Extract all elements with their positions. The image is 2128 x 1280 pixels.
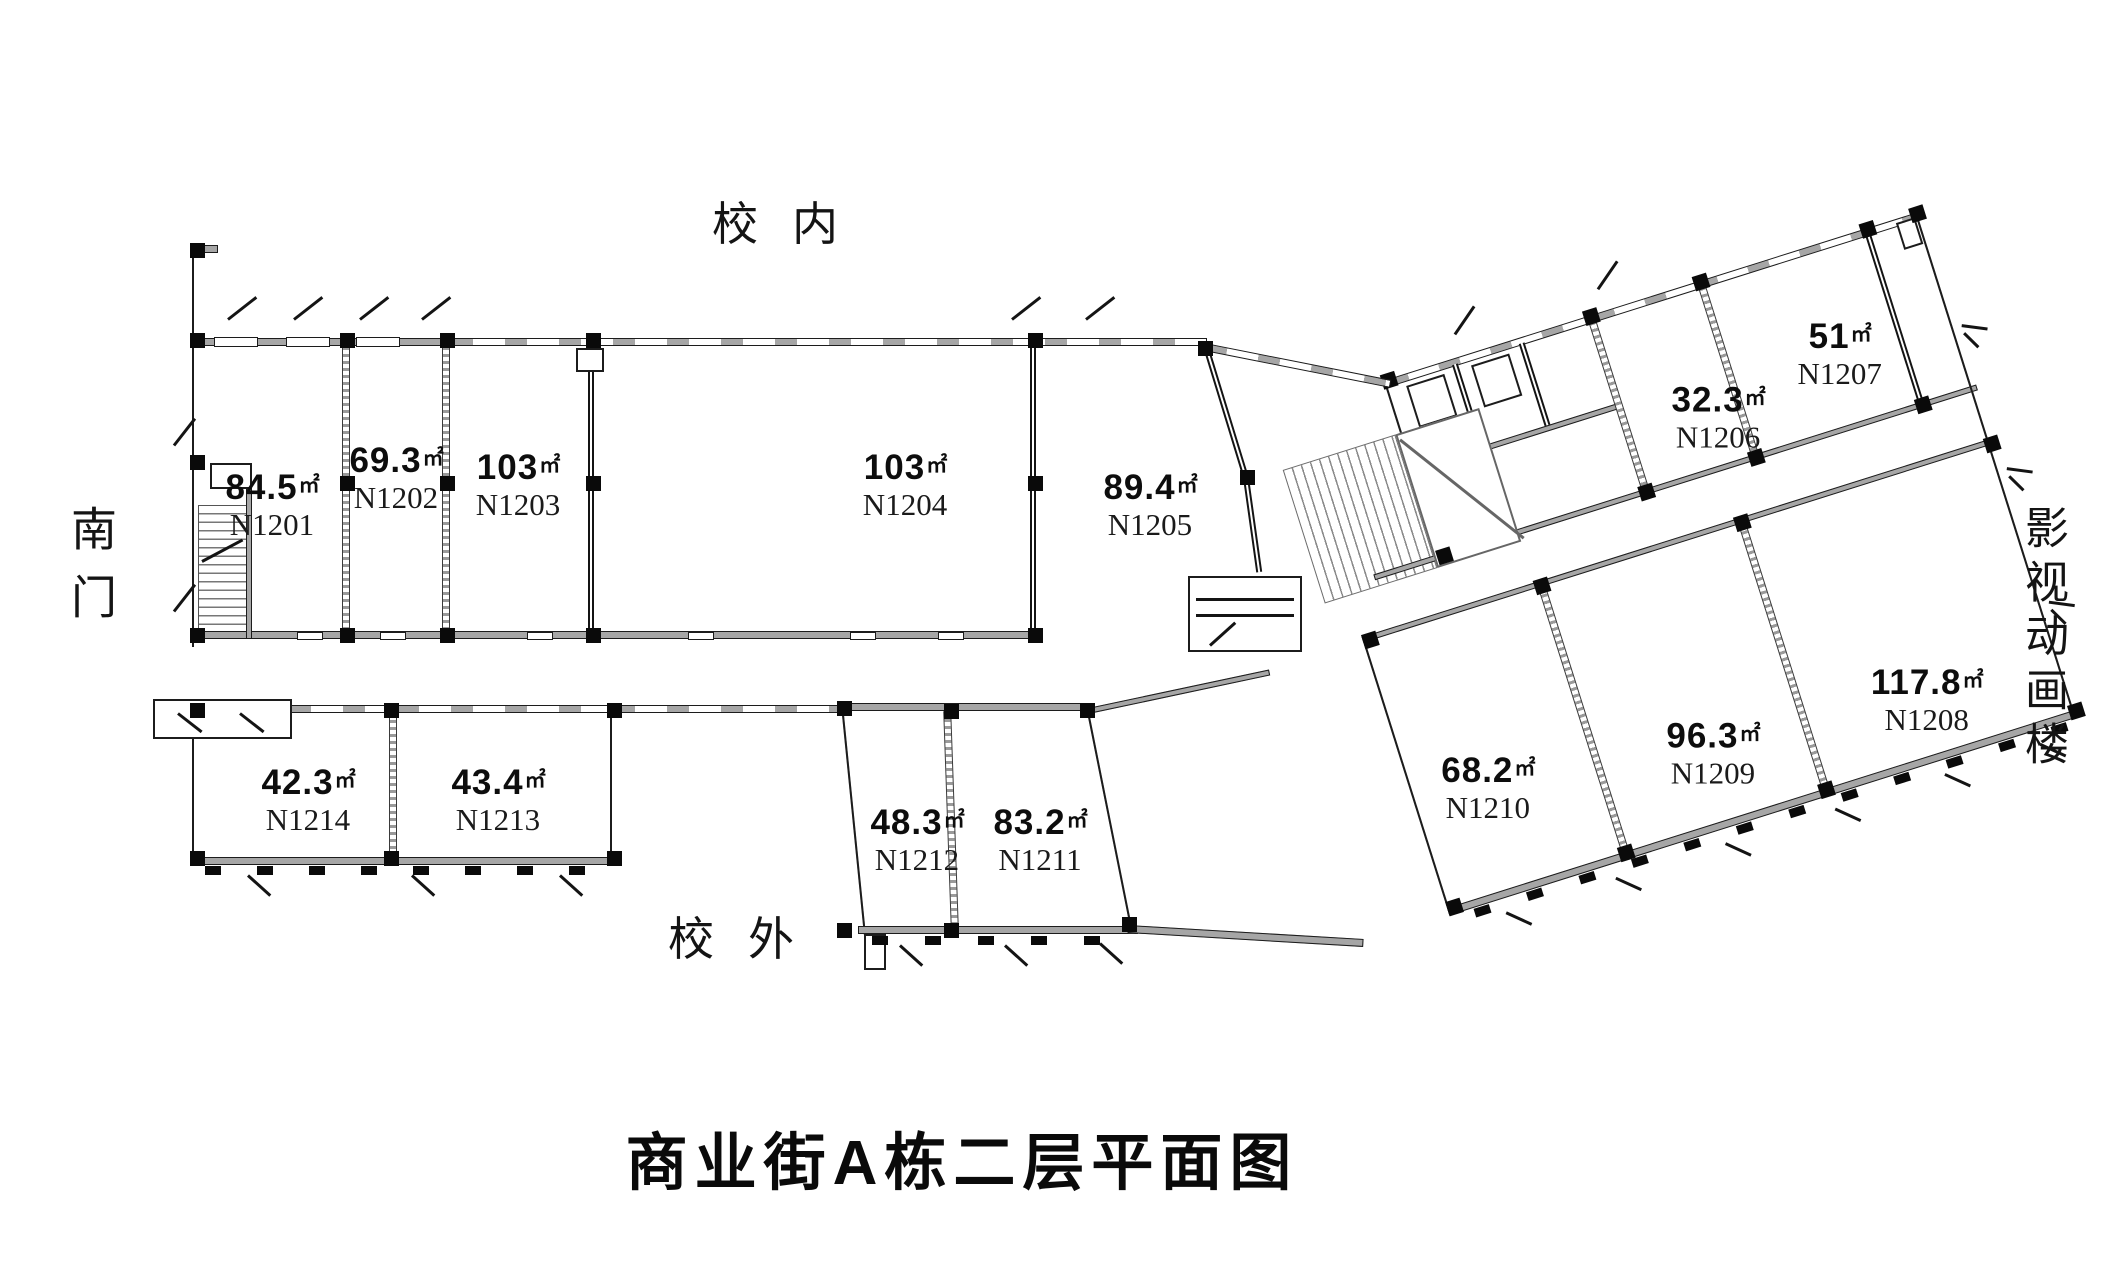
room-area: 96.3 [1666,717,1738,756]
wall-north-windows [450,338,1207,346]
room-label-n1208: 117.8㎡ N1208 [1871,664,1983,736]
room-code: N1209 [1666,756,1759,789]
column-marker [384,851,399,866]
room-label-n1207: 51㎡ N1207 [1797,318,1881,390]
door-swing-icon [899,944,923,966]
door-swing-icon [559,874,583,896]
column-marker [607,851,622,866]
divider-n1210-n1209 [1538,585,1629,853]
room-area-unit: ㎡ [1745,386,1766,409]
block-se-north-wall [840,703,1092,711]
room-area-unit: ㎡ [1851,323,1872,346]
arcade-column-tick [872,936,888,945]
column-marker [1028,333,1043,348]
window-mark-icon [1963,332,1979,348]
room-area-unit: ㎡ [539,454,560,477]
wing-south-wall [1447,709,2081,916]
room-area: 103 [477,448,538,487]
column-marker [586,333,601,348]
diagonal-wing: 32.3㎡ N1206 51㎡ N1207 68.2㎡ N1210 96.3㎡ … [1290,200,2126,945]
room-area: 83.2 [993,803,1065,842]
room-label-n1210: 68.2㎡ N1210 [1441,752,1534,824]
column-marker [1445,898,1464,917]
room-code: N1206 [1672,420,1765,453]
door-gap [938,632,964,640]
room-code: N1214 [261,803,354,836]
porch-step-line [1196,598,1294,601]
divider-n1214-n1213 [389,712,397,859]
column-marker [190,243,205,258]
column-marker [340,333,355,348]
room-area: 117.8 [1871,663,1962,702]
column-marker [1240,470,1255,485]
door-swing-icon [1506,911,1533,925]
room-label-n1201: 84.5㎡ N1201 [225,469,318,541]
column-marker [944,704,959,719]
room-area-unit: ㎡ [1067,809,1088,832]
room-area-unit: ㎡ [423,447,444,470]
room-code: N1211 [993,843,1086,876]
room-area: 32.3 [1672,380,1744,419]
room-area: 69.3 [349,441,421,480]
room-area-unit: ㎡ [1514,757,1535,780]
door-swing-icon [1004,944,1028,966]
column-marker [1859,220,1878,239]
door-swing-icon [1615,877,1642,891]
room-code: N1213 [451,803,544,836]
room-area: 84.5 [225,468,297,507]
door-jamb-n1204 [576,348,604,372]
room-code: N1208 [1871,703,1983,736]
room-code: N1204 [863,488,947,521]
column-marker [607,703,622,718]
window-opener-icon [293,296,323,321]
arcade-column-tick [978,936,994,945]
wall-arcade-bridge [1128,925,1364,947]
column-marker [190,333,205,348]
window-sill [356,337,400,347]
column-marker [837,701,852,716]
column-marker [1908,204,1927,223]
room-code: N1201 [225,508,318,541]
door-gap [297,632,323,640]
arcade-column-tick [309,866,325,875]
column-marker [190,703,205,718]
block-se-east-wall [1086,707,1132,929]
block-se-west-wall [841,705,866,935]
window-mark-icon [1962,324,1988,330]
label-south-gate: 南门 [58,505,124,641]
column-marker [440,628,455,643]
wall-n1205-east-lower [1243,478,1262,573]
room-label-n1209: 96.3㎡ N1209 [1666,718,1759,790]
room-area-unit: ㎡ [1739,723,1760,746]
wall-n1205-east-upper [1203,346,1249,480]
door-gap [688,632,714,640]
room-label-n1211: 83.2㎡ N1211 [993,804,1086,876]
door-swing-icon [1725,842,1752,856]
window-opener-icon [227,296,257,321]
window-opener-icon [1011,296,1041,321]
door-gap [850,632,876,640]
arcade-column-tick [925,936,941,945]
column-marker [1198,341,1213,356]
door-gap [527,632,553,640]
window-sill [286,337,330,347]
room-label-n1205: 89.4㎡ N1205 [1103,469,1196,541]
wall-connector-to-wing [1203,343,1391,388]
room-label-n1212: 48.3㎡ N1212 [870,804,963,876]
column-marker [1028,628,1043,643]
column-marker [190,628,205,643]
column-marker [190,455,205,470]
window-opener-icon [1597,260,1619,290]
room-label-n1214: 42.3㎡ N1214 [261,764,354,836]
column-marker [837,923,852,938]
column-marker [586,628,601,643]
entry-vestibule-west [153,699,292,739]
arcade-column-tick [361,866,377,875]
room-code: N1202 [349,481,442,514]
arcade-column-tick [205,866,221,875]
window-opener-icon [359,296,389,321]
room-area-unit: ㎡ [1177,474,1198,497]
door-swing-icon [247,874,271,896]
room-label-n1203: 103㎡ N1203 [476,449,560,521]
room-area: 103 [864,448,925,487]
room-label-n1213: 43.4㎡ N1213 [451,764,544,836]
floor-plan-canvas: 校内 校外 南门 影视动画楼 商业街A栋二层平面图 [0,0,2128,1280]
window-opener-icon [1085,296,1115,321]
column-marker [1028,476,1043,491]
column-marker [440,333,455,348]
door-swing-icon [1099,942,1123,964]
column-marker [1122,917,1137,932]
room-label-n1202: 69.3㎡ N1202 [349,442,442,514]
block-sw-south-wall [192,857,617,865]
room-code: N1203 [476,488,560,521]
room-area-unit: ㎡ [525,769,546,792]
wing-lower-west-wall [1362,638,1451,915]
arcade-column-tick [257,866,273,875]
room-area: 51 [1809,317,1850,356]
window-mark-icon [2007,467,2033,473]
label-campus-inside: 校内 [712,188,872,254]
room-code: N1212 [870,843,963,876]
room-code: N1205 [1103,508,1196,541]
column-marker [1582,307,1601,326]
column-marker [944,923,959,938]
arcade-column-tick [465,866,481,875]
plan-title: 商业街A栋二层平面图 [626,1112,1299,1202]
column-marker [1817,780,1836,799]
column-marker [1080,703,1095,718]
block-se-south-wall [858,926,1138,934]
room-area: 89.4 [1103,468,1175,507]
room-area-unit: ㎡ [1962,669,1983,692]
column-marker [190,851,205,866]
arcade-column-tick [1084,936,1100,945]
wall-corridor-bridge [1088,670,1270,714]
arcade-column-tick [1031,936,1047,945]
wing-toilet-partition [1519,342,1551,428]
room-label-n1204: 103㎡ N1204 [863,449,947,521]
door-swing-icon [411,874,435,896]
column-marker [1692,273,1711,292]
room-code: N1207 [1797,357,1881,390]
door-swing-icon [1835,808,1862,822]
room-area-unit: ㎡ [926,454,947,477]
door-swing-icon [1944,773,1971,787]
label-film-animation-building: 影视动画楼 [2010,505,2074,775]
room-code: N1210 [1441,791,1534,824]
room-area: 43.4 [451,763,523,802]
door-gap [380,632,406,640]
window-opener-icon [421,296,451,321]
porch-step-line [1196,614,1294,617]
walkway-parapet [288,705,845,713]
arcade-column-tick [517,866,533,875]
window-sill [214,337,258,347]
block-sw-east-wall [610,705,612,865]
arcade-column-tick [569,866,585,875]
arcade-column-tick [413,866,429,875]
room-area-unit: ㎡ [335,769,356,792]
room-area: 42.3 [261,763,333,802]
room-label-n1206: 32.3㎡ N1206 [1672,381,1765,453]
room-area-unit: ㎡ [299,474,320,497]
window-mark-icon [2008,475,2024,491]
room-area: 68.2 [1441,751,1513,790]
room-area: 48.3 [870,803,942,842]
wing-toilet-stall [1471,353,1522,407]
label-campus-outside: 校外 [668,903,828,969]
column-marker [1983,435,2002,454]
divider-toilet-n1206 [1588,320,1649,490]
column-marker [340,628,355,643]
room-area-unit: ㎡ [944,809,965,832]
column-marker [586,476,601,491]
column-marker [384,703,399,718]
window-opener-icon [1454,306,1476,336]
